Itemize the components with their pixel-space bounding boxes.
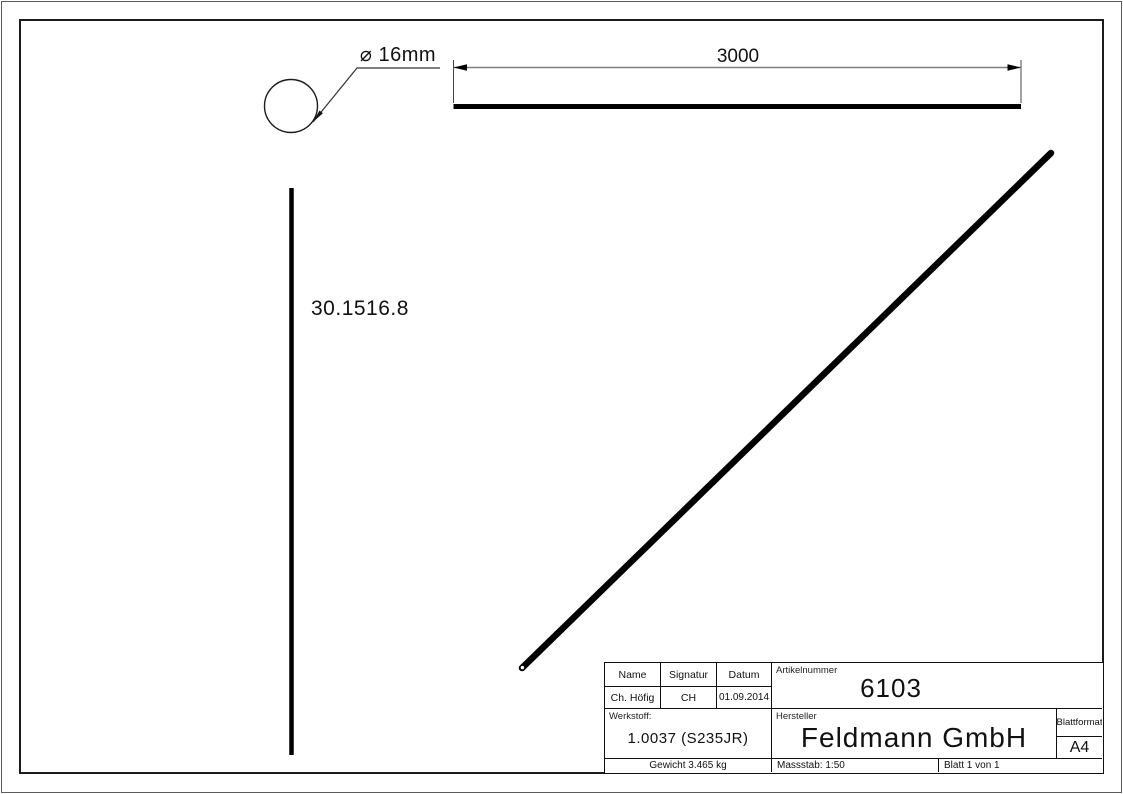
titleblock-header-date: Datum — [717, 663, 772, 687]
title-block: Name Signatur Datum Artikelnummer 6103 C… — [604, 662, 1104, 774]
diameter-leader-arrowhead — [313, 111, 323, 123]
article-number-label: Artikelnummer — [776, 665, 837, 676]
technical-drawing-sheet: ⌀ 16mm 3000 30.1516.8 Name Signatur Datu… — [0, 0, 1123, 794]
manufacturer-label: Hersteller — [776, 711, 817, 722]
diameter-annotation: ⌀ 16mm — [355, 42, 441, 67]
titleblock-date-value: 01.09.2014 — [717, 687, 772, 709]
titleblock-sheet-format-label-cell: Blattformat — [1057, 709, 1102, 737]
weight-value: Gewicht 3.465 kg — [649, 760, 726, 771]
scale-value: Massstab: 1:50 — [777, 760, 845, 771]
header-signature-label: Signatur — [669, 669, 708, 681]
rod-cross-section-circle — [265, 80, 318, 133]
rod-isometric-view-bar — [522, 153, 1051, 668]
titleblock-header-name: Name — [605, 663, 661, 687]
titleblock-signature-value: CH — [661, 687, 717, 709]
sheet-format-value: A4 — [1070, 739, 1090, 757]
titleblock-name-value: Ch. Höfig — [605, 687, 661, 709]
titleblock-weight-cell: Gewicht 3.465 kg — [605, 759, 772, 772]
dimension-arrowhead-right — [1008, 64, 1022, 70]
diameter-leader-line — [313, 68, 440, 122]
titleblock-header-signature: Signatur — [661, 663, 717, 687]
author-signature: CH — [681, 692, 696, 704]
titleblock-sheet-number-cell: Blatt 1 von 1 — [939, 759, 1102, 772]
header-date-label: Datum — [729, 669, 760, 681]
author-name: Ch. Höfig — [611, 692, 655, 704]
manufacturer-value: Feldmann GmbH — [801, 714, 1027, 754]
titleblock-manufacturer-cell: Hersteller Feldmann GmbH — [772, 709, 1057, 759]
length-dimension-text: 3000 — [702, 46, 774, 68]
titleblock-sheet-format-value-cell: A4 — [1057, 737, 1102, 759]
titleblock-article-number-cell: Artikelnummer 6103 — [772, 663, 1102, 709]
titleblock-scale-cell: Massstab: 1:50 — [772, 759, 939, 772]
titleblock-material-cell: Werkstoff: 1.0037 (S235JR) — [605, 709, 772, 759]
material-label: Werkstoff: — [609, 711, 651, 722]
drawing-date: 01.09.2014 — [719, 692, 769, 703]
dimension-arrowhead-left — [454, 64, 468, 70]
part-number-annotation: 30.1516.8 — [311, 297, 409, 321]
sheet-number-value: Blatt 1 von 1 — [944, 760, 1000, 771]
header-name-label: Name — [618, 669, 646, 681]
sheet-format-label: Blattformat — [1057, 717, 1102, 728]
material-value: 1.0037 (S235JR) — [628, 720, 749, 747]
rod-end-face-highlight — [521, 666, 524, 669]
article-number-value: 6103 — [860, 667, 1014, 704]
